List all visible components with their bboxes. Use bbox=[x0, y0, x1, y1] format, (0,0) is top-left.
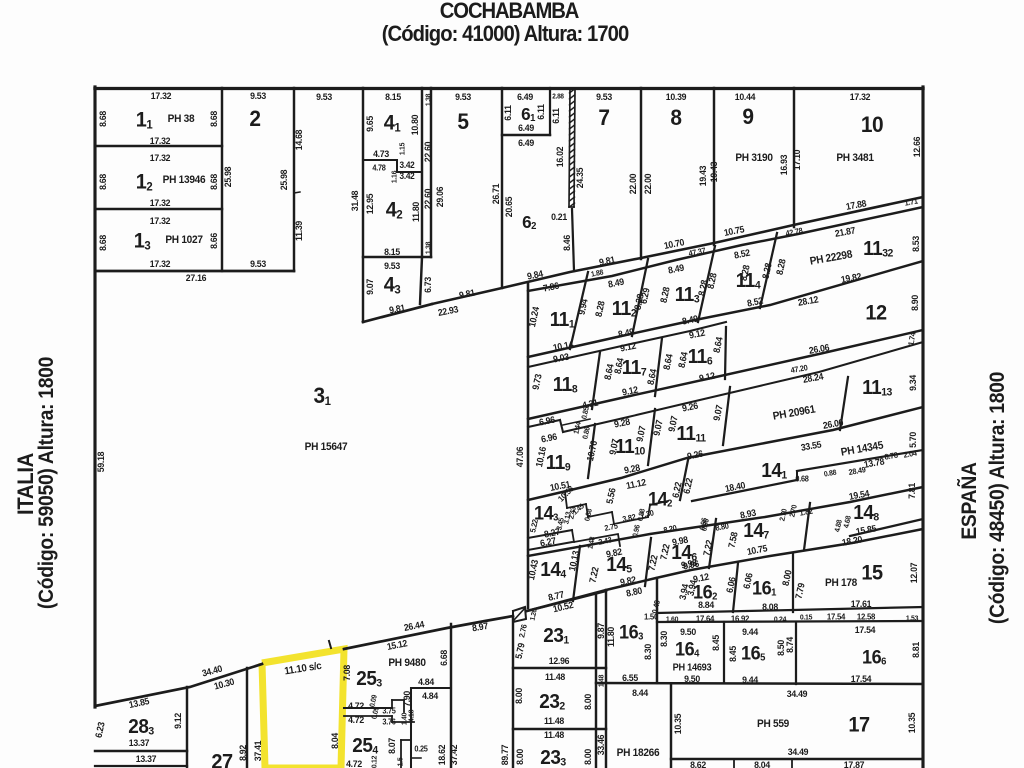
svg-text:PH 559: PH 559 bbox=[757, 718, 789, 730]
svg-text:8.53: 8.53 bbox=[911, 236, 921, 252]
svg-text:15: 15 bbox=[861, 561, 882, 585]
svg-text:8.68: 8.68 bbox=[98, 174, 108, 190]
svg-text:16.92: 16.92 bbox=[731, 614, 750, 623]
svg-text:17: 17 bbox=[848, 713, 869, 737]
svg-text:PH 14693: PH 14693 bbox=[673, 662, 712, 673]
svg-text:17.32: 17.32 bbox=[150, 216, 171, 226]
svg-text:17.61: 17.61 bbox=[851, 599, 872, 609]
svg-text:PH 18266: PH 18266 bbox=[617, 747, 660, 759]
svg-text:12: 12 bbox=[865, 301, 886, 325]
svg-text:6.49: 6.49 bbox=[517, 92, 533, 102]
svg-text:17.32: 17.32 bbox=[150, 136, 171, 146]
svg-text:PH 15647: PH 15647 bbox=[305, 441, 348, 453]
svg-text:8.81: 8.81 bbox=[911, 642, 921, 658]
svg-text:7.90: 7.90 bbox=[402, 691, 412, 707]
svg-text:9.53: 9.53 bbox=[250, 91, 266, 101]
svg-text:9: 9 bbox=[742, 105, 754, 130]
svg-text:11.80: 11.80 bbox=[606, 627, 616, 647]
svg-text:PH 3481: PH 3481 bbox=[836, 152, 874, 164]
svg-text:17.32: 17.32 bbox=[850, 92, 871, 102]
svg-text:(Código: 48450) Altura: 1800: (Código: 48450) Altura: 1800 bbox=[987, 372, 1010, 624]
svg-text:8.90: 8.90 bbox=[910, 295, 920, 311]
svg-text:59.18: 59.18 bbox=[96, 452, 106, 473]
svg-text:14.68: 14.68 bbox=[294, 130, 304, 151]
svg-text:8.68: 8.68 bbox=[98, 235, 108, 251]
svg-text:11.48: 11.48 bbox=[545, 672, 565, 682]
svg-text:34.49: 34.49 bbox=[788, 747, 809, 757]
svg-text:0.25: 0.25 bbox=[414, 744, 428, 753]
svg-text:8.07: 8.07 bbox=[387, 738, 397, 754]
svg-text:12.07: 12.07 bbox=[909, 563, 919, 584]
svg-text:17.10: 17.10 bbox=[792, 150, 802, 171]
svg-text:29.06: 29.06 bbox=[435, 187, 445, 208]
svg-text:0.15: 0.15 bbox=[800, 612, 813, 621]
svg-text:12.66: 12.66 bbox=[912, 137, 922, 158]
svg-text:10.39: 10.39 bbox=[666, 92, 687, 102]
svg-text:9.50: 9.50 bbox=[684, 674, 700, 684]
svg-text:8.68: 8.68 bbox=[209, 111, 219, 127]
svg-text:12.95: 12.95 bbox=[365, 194, 375, 215]
svg-text:5.70: 5.70 bbox=[908, 432, 918, 448]
svg-text:0.68: 0.68 bbox=[795, 474, 809, 483]
svg-text:18.62: 18.62 bbox=[437, 745, 447, 766]
svg-text:9.50: 9.50 bbox=[680, 627, 696, 637]
svg-text:16.02: 16.02 bbox=[555, 147, 565, 168]
svg-text:8.84: 8.84 bbox=[698, 600, 715, 610]
svg-text:9.44: 9.44 bbox=[742, 675, 759, 685]
svg-text:10.35: 10.35 bbox=[673, 714, 683, 735]
svg-text:3.75: 3.75 bbox=[382, 706, 396, 715]
svg-text:ESPAÑA: ESPAÑA bbox=[958, 462, 982, 540]
svg-text:4.84: 4.84 bbox=[418, 677, 435, 687]
svg-text:11.80: 11.80 bbox=[411, 202, 421, 222]
svg-text:16.93: 16.93 bbox=[779, 155, 789, 176]
svg-text:9.53: 9.53 bbox=[316, 92, 332, 102]
svg-text:10.35: 10.35 bbox=[907, 713, 917, 734]
svg-text:PH 9480: PH 9480 bbox=[388, 657, 426, 669]
svg-text:6.55: 6.55 bbox=[622, 673, 638, 683]
svg-text:1.53: 1.53 bbox=[906, 613, 919, 622]
svg-text:8.30: 8.30 bbox=[643, 644, 653, 660]
svg-text:5: 5 bbox=[457, 110, 469, 135]
svg-text:34.49: 34.49 bbox=[787, 689, 808, 699]
svg-text:7.08: 7.08 bbox=[342, 665, 352, 681]
svg-text:6.11: 6.11 bbox=[503, 105, 513, 121]
svg-text:27: 27 bbox=[211, 750, 232, 768]
svg-text:9.07: 9.07 bbox=[365, 279, 375, 295]
svg-text:22.60: 22.60 bbox=[423, 189, 433, 210]
svg-text:25.98: 25.98 bbox=[223, 167, 233, 188]
svg-text:0.24: 0.24 bbox=[774, 614, 787, 623]
svg-text:10: 10 bbox=[861, 113, 884, 138]
svg-text:(Código: 41000) Altura: 1700: (Código: 41000) Altura: 1700 bbox=[382, 22, 629, 46]
svg-text:7: 7 bbox=[598, 106, 609, 131]
svg-text:8.00: 8.00 bbox=[515, 749, 525, 765]
svg-text:6.49: 6.49 bbox=[518, 123, 534, 133]
svg-text:20.65: 20.65 bbox=[504, 197, 514, 218]
svg-text:9.65: 9.65 bbox=[365, 116, 375, 132]
svg-text:4.72: 4.72 bbox=[346, 759, 362, 768]
svg-text:8.74: 8.74 bbox=[785, 636, 795, 653]
svg-text:4.18: 4.18 bbox=[406, 710, 415, 723]
svg-text:1.38: 1.38 bbox=[423, 94, 432, 107]
svg-text:9.53: 9.53 bbox=[455, 92, 471, 102]
svg-text:8.46: 8.46 bbox=[562, 235, 572, 251]
svg-text:8.00: 8.00 bbox=[514, 688, 524, 704]
svg-text:6.73: 6.73 bbox=[423, 277, 433, 293]
svg-text:33.46: 33.46 bbox=[596, 735, 606, 756]
svg-text:11.39: 11.39 bbox=[294, 221, 304, 241]
svg-text:17.54: 17.54 bbox=[851, 674, 873, 684]
svg-text:47.06: 47.06 bbox=[515, 447, 525, 468]
svg-text:19.43: 19.43 bbox=[709, 162, 719, 183]
svg-text:25.98: 25.98 bbox=[279, 170, 289, 191]
svg-text:8.68: 8.68 bbox=[98, 111, 108, 127]
svg-text:9.44: 9.44 bbox=[742, 627, 759, 637]
svg-text:0.12: 0.12 bbox=[369, 756, 378, 768]
svg-text:PH 178: PH 178 bbox=[825, 577, 857, 589]
svg-text:1.60: 1.60 bbox=[666, 614, 679, 623]
svg-text:17.32: 17.32 bbox=[150, 259, 171, 269]
svg-text:11.48: 11.48 bbox=[544, 716, 564, 726]
svg-text:6.49: 6.49 bbox=[518, 138, 534, 148]
svg-text:1.15: 1.15 bbox=[397, 143, 406, 156]
svg-text:8.66: 8.66 bbox=[209, 233, 219, 249]
svg-text:22.60: 22.60 bbox=[423, 142, 433, 163]
svg-text:6.11: 6.11 bbox=[536, 104, 546, 120]
svg-text:4.73: 4.73 bbox=[373, 149, 389, 159]
svg-text:3.42: 3.42 bbox=[400, 160, 415, 170]
svg-text:31.48: 31.48 bbox=[350, 191, 360, 212]
svg-text:4.72: 4.72 bbox=[348, 715, 364, 725]
svg-text:26.71: 26.71 bbox=[491, 184, 501, 205]
svg-text:PH 13946: PH 13946 bbox=[163, 174, 206, 186]
svg-text:PH 1027: PH 1027 bbox=[165, 234, 203, 246]
svg-text:8.92: 8.92 bbox=[238, 745, 248, 761]
svg-text:1.16: 1.16 bbox=[389, 171, 398, 184]
svg-text:19.43: 19.43 bbox=[698, 166, 708, 187]
svg-text:PH 38: PH 38 bbox=[168, 113, 195, 125]
svg-text:9.53: 9.53 bbox=[384, 261, 400, 271]
svg-text:8.15: 8.15 bbox=[384, 247, 400, 257]
svg-text:2: 2 bbox=[249, 107, 261, 132]
svg-text:17.54: 17.54 bbox=[827, 612, 846, 621]
svg-text:8.45: 8.45 bbox=[728, 646, 738, 662]
svg-text:12.96: 12.96 bbox=[549, 656, 570, 666]
svg-text:17.32: 17.32 bbox=[150, 198, 171, 208]
svg-text:8.04: 8.04 bbox=[330, 732, 340, 749]
svg-text:8.44: 8.44 bbox=[632, 688, 649, 698]
svg-text:7.81: 7.81 bbox=[907, 483, 917, 499]
svg-text:37.41: 37.41 bbox=[253, 741, 263, 762]
svg-text:1.48: 1.48 bbox=[596, 675, 605, 688]
svg-text:1.38: 1.38 bbox=[423, 242, 432, 255]
svg-text:1.50: 1.50 bbox=[644, 612, 659, 621]
svg-text:13.37: 13.37 bbox=[136, 754, 157, 764]
svg-text:8: 8 bbox=[670, 106, 682, 131]
svg-text:8.62: 8.62 bbox=[690, 760, 706, 768]
svg-text:17.54: 17.54 bbox=[855, 625, 877, 635]
svg-text:24.35: 24.35 bbox=[575, 168, 585, 189]
svg-text:ITALIA: ITALIA bbox=[14, 453, 38, 515]
svg-text:2.88: 2.88 bbox=[552, 93, 564, 100]
svg-text:COCHABAMBA: COCHABAMBA bbox=[440, 0, 579, 23]
svg-text:11.48: 11.48 bbox=[544, 730, 564, 740]
svg-text:8.30: 8.30 bbox=[659, 631, 669, 647]
svg-text:10.80: 10.80 bbox=[410, 115, 420, 136]
svg-text:6.11: 6.11 bbox=[551, 108, 561, 124]
svg-text:10.44: 10.44 bbox=[735, 92, 757, 102]
svg-text:22.00: 22.00 bbox=[628, 174, 638, 195]
svg-text:6.68: 6.68 bbox=[439, 650, 449, 666]
svg-text:0.21: 0.21 bbox=[551, 212, 567, 222]
svg-text:8.68: 8.68 bbox=[209, 174, 219, 190]
svg-text:17.64: 17.64 bbox=[696, 614, 715, 623]
svg-text:13.37: 13.37 bbox=[129, 738, 150, 748]
svg-text:PH 3190: PH 3190 bbox=[735, 152, 773, 164]
svg-text:17.87: 17.87 bbox=[844, 760, 865, 768]
svg-text:3.76: 3.76 bbox=[382, 717, 395, 726]
svg-text:3.42: 3.42 bbox=[400, 171, 415, 181]
svg-text:89.77: 89.77 bbox=[500, 745, 510, 766]
svg-text:12.58: 12.58 bbox=[857, 612, 876, 621]
svg-text:8.00: 8.00 bbox=[583, 694, 593, 710]
svg-text:4.72: 4.72 bbox=[348, 701, 364, 711]
svg-text:22.00: 22.00 bbox=[643, 174, 653, 195]
svg-text:4.84: 4.84 bbox=[422, 691, 439, 701]
svg-text:17.32: 17.32 bbox=[151, 91, 172, 101]
svg-text:27.16: 27.16 bbox=[186, 273, 207, 283]
svg-text:17.32: 17.32 bbox=[150, 153, 171, 163]
svg-text:(Código: 59050) Altura: 1800: (Código: 59050) Altura: 1800 bbox=[36, 357, 59, 609]
svg-text:8.04: 8.04 bbox=[754, 760, 771, 768]
svg-text:9.12: 9.12 bbox=[173, 713, 183, 729]
svg-text:9.87: 9.87 bbox=[596, 623, 606, 639]
svg-text:9.34: 9.34 bbox=[908, 374, 918, 391]
svg-text:9.53: 9.53 bbox=[250, 259, 266, 269]
svg-text:8.08: 8.08 bbox=[762, 602, 778, 612]
svg-text:8.15: 8.15 bbox=[385, 92, 401, 102]
svg-text:8.45: 8.45 bbox=[711, 635, 721, 651]
svg-text:4.78: 4.78 bbox=[372, 163, 386, 172]
svg-text:1.5: 1.5 bbox=[395, 757, 404, 766]
svg-text:8.00: 8.00 bbox=[583, 749, 593, 765]
svg-text:37.42: 37.42 bbox=[449, 745, 459, 766]
svg-text:9.53: 9.53 bbox=[596, 92, 612, 102]
